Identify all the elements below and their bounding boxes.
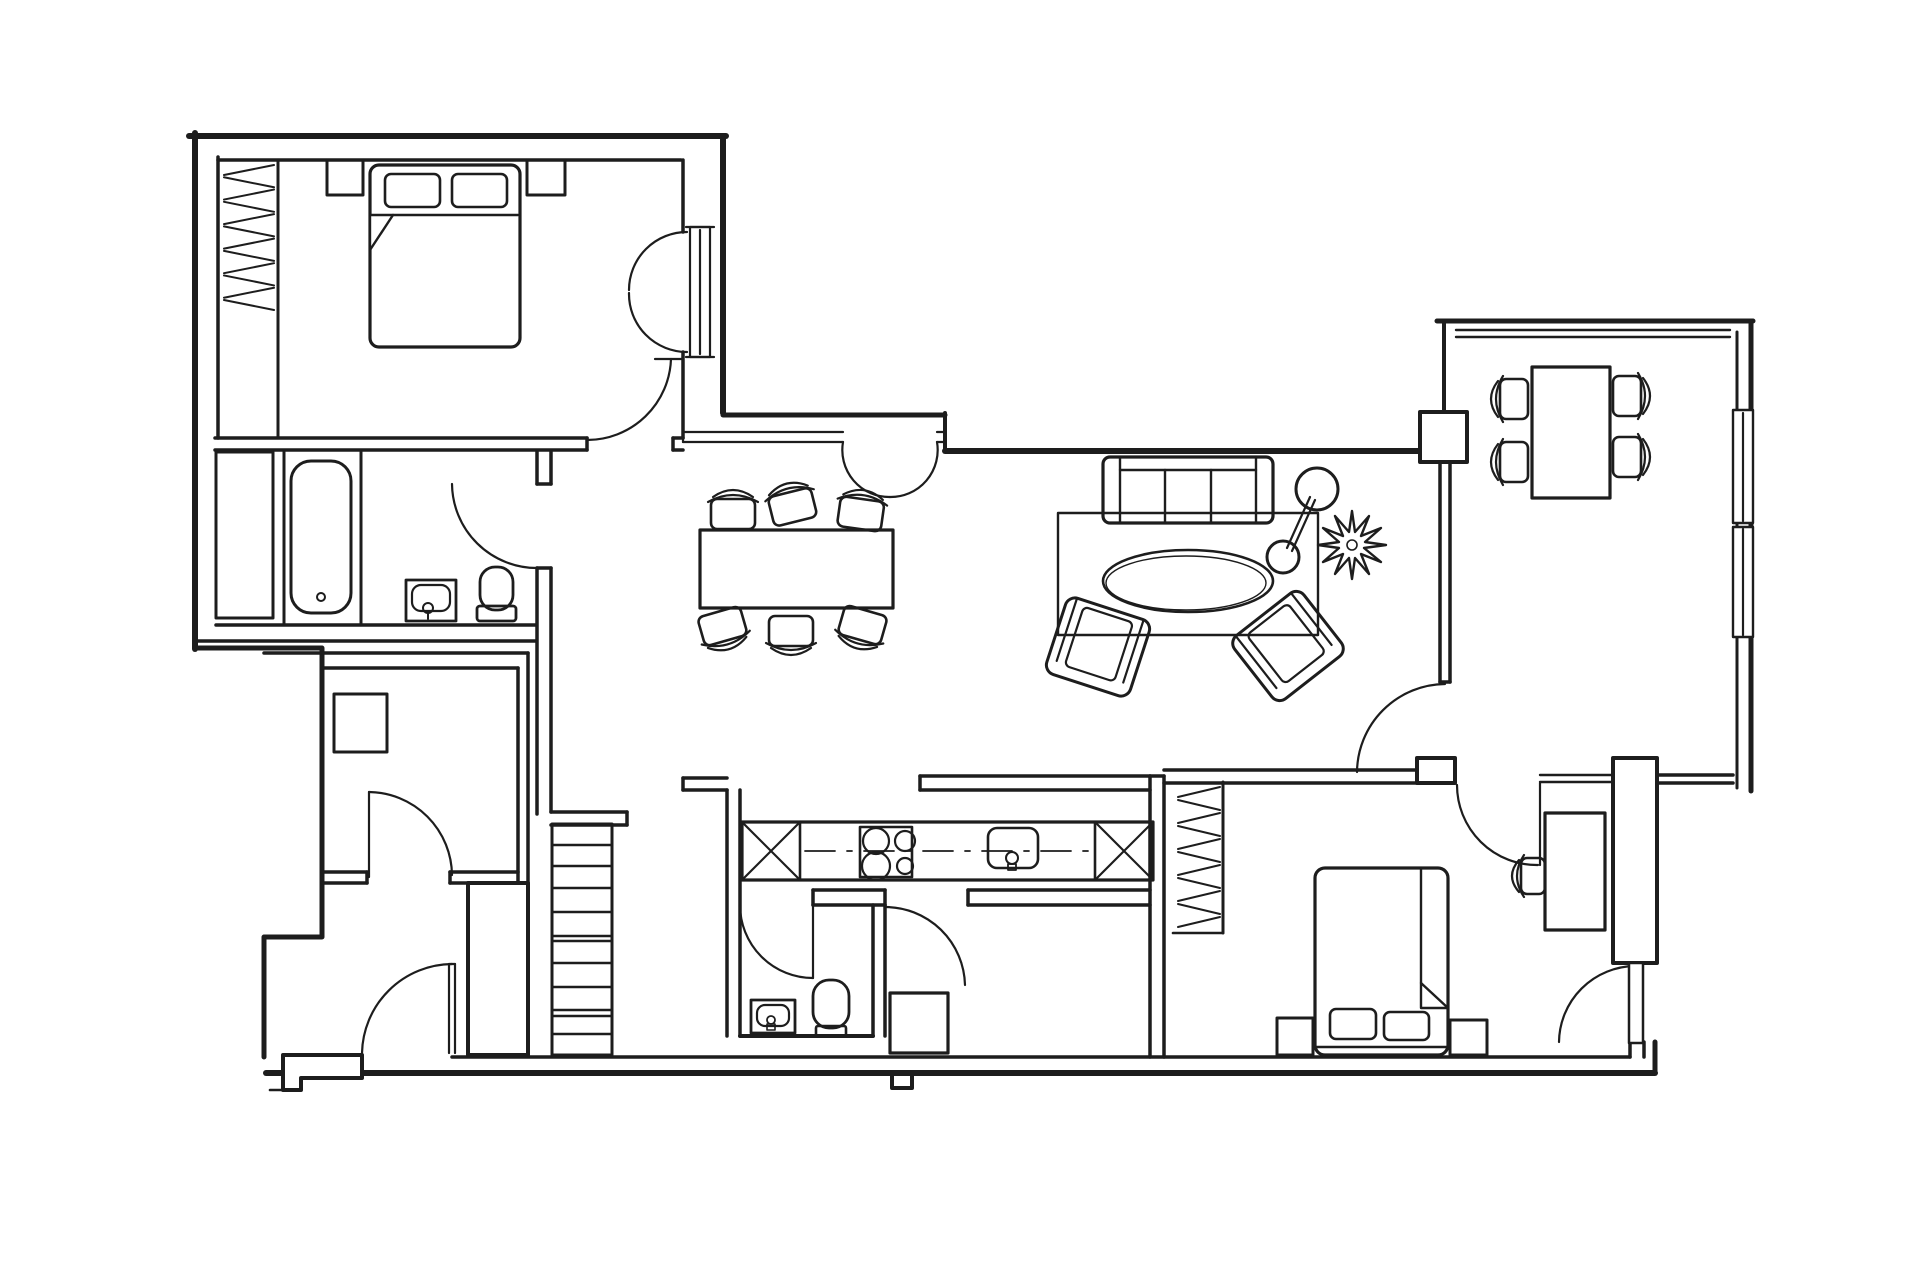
dining-chair-3 — [834, 487, 889, 533]
bedroom2-door-arc — [1457, 785, 1538, 865]
french-door-arc-right — [890, 442, 938, 497]
dining-chair-6 — [832, 604, 891, 655]
floor-lamp-shade — [1296, 468, 1338, 510]
bed2-pillow-right — [1384, 1012, 1429, 1040]
staircase — [552, 824, 612, 1055]
bathroom-sink-basin — [412, 585, 450, 611]
wc-sink-faucet — [767, 1016, 775, 1024]
bedroom2-east-pier — [1613, 758, 1657, 963]
bathroom-sink-outer — [406, 580, 456, 621]
dining-table — [700, 530, 893, 608]
sunroom-chair-2 — [1491, 439, 1528, 485]
nightstand-2b — [1450, 1020, 1487, 1055]
wc-door-arc — [740, 905, 813, 978]
wardrobe1-hatch — [224, 165, 274, 310]
kitchen-sink-faucet — [1006, 852, 1018, 864]
bedroom1-balcony-door-arc-1 — [629, 232, 687, 290]
bathroom-cabinet — [216, 452, 273, 618]
coffee-table-sketch — [1106, 556, 1266, 610]
coffee-table — [1103, 550, 1273, 612]
bedroom2-east-door-leaf — [1629, 963, 1643, 1043]
floor-plan — [0, 0, 1920, 1273]
desk — [1545, 813, 1605, 930]
windows — [683, 227, 1743, 635]
entry-threshold-block — [283, 1055, 362, 1090]
bedroom2-east-door-arc — [1559, 966, 1635, 1042]
bed2-pillow-left — [1330, 1009, 1376, 1039]
floor-lamp-rod-b — [1292, 500, 1315, 551]
bed1-pillow-left — [385, 174, 440, 207]
storage-door-arc — [369, 792, 452, 875]
toilet1-tank — [477, 606, 516, 621]
plant — [1318, 511, 1386, 579]
floor-plan-svg — [0, 0, 1920, 1273]
entry-stair-pier — [468, 883, 528, 1055]
bedroom2-door-pier — [1417, 758, 1455, 783]
wc-toilet-bowl — [813, 980, 849, 1028]
sunroom-chair-4 — [1613, 434, 1650, 480]
armchair-2 — [1229, 587, 1348, 704]
entrance-door-arc — [362, 964, 452, 1053]
outer-wall-southwest — [195, 648, 322, 1057]
french-door-arc-left — [842, 442, 890, 497]
nightstand-1a — [327, 160, 363, 195]
bedroom1-balcony-door-arc-2 — [629, 293, 687, 352]
wall-blocks — [270, 410, 1753, 1090]
bedroom1-hall-door-arc — [587, 359, 671, 440]
plant-center — [1347, 540, 1357, 550]
sunroom-chair-3 — [1613, 373, 1650, 419]
bed2-blanket-fold — [1421, 983, 1448, 1008]
dining-chair-2 — [762, 478, 820, 528]
nightstand-2a — [1277, 1018, 1313, 1055]
dining-chair-1 — [708, 490, 758, 529]
burner-4 — [897, 858, 913, 874]
wardrobe2-hatch — [1178, 787, 1220, 927]
bathroom-door-arc — [452, 484, 537, 568]
storage-cabinet — [334, 694, 387, 752]
washing-machine — [890, 993, 948, 1053]
nightstand-1b — [527, 160, 565, 195]
kitchen-sink — [988, 828, 1038, 868]
sunroom-chair-1 — [1491, 376, 1528, 422]
toilet1-bowl — [480, 567, 513, 610]
bathtub-drain — [317, 593, 325, 601]
armchair-1 — [1044, 595, 1152, 698]
furniture — [216, 160, 1650, 1055]
floor-lamp-rod-a — [1287, 497, 1310, 548]
dining-chair-5 — [766, 616, 816, 655]
utility-door-arc — [885, 907, 965, 985]
bed1-blanket-fold — [370, 215, 393, 250]
bathtub — [291, 461, 351, 613]
bed1 — [370, 165, 520, 347]
living-sunroom-junction-pier — [1420, 412, 1467, 462]
dining-chair-4 — [694, 605, 753, 656]
inner-walls — [198, 157, 1737, 1057]
bed1-pillow-right — [452, 174, 507, 207]
sunroom-table — [1532, 367, 1610, 498]
